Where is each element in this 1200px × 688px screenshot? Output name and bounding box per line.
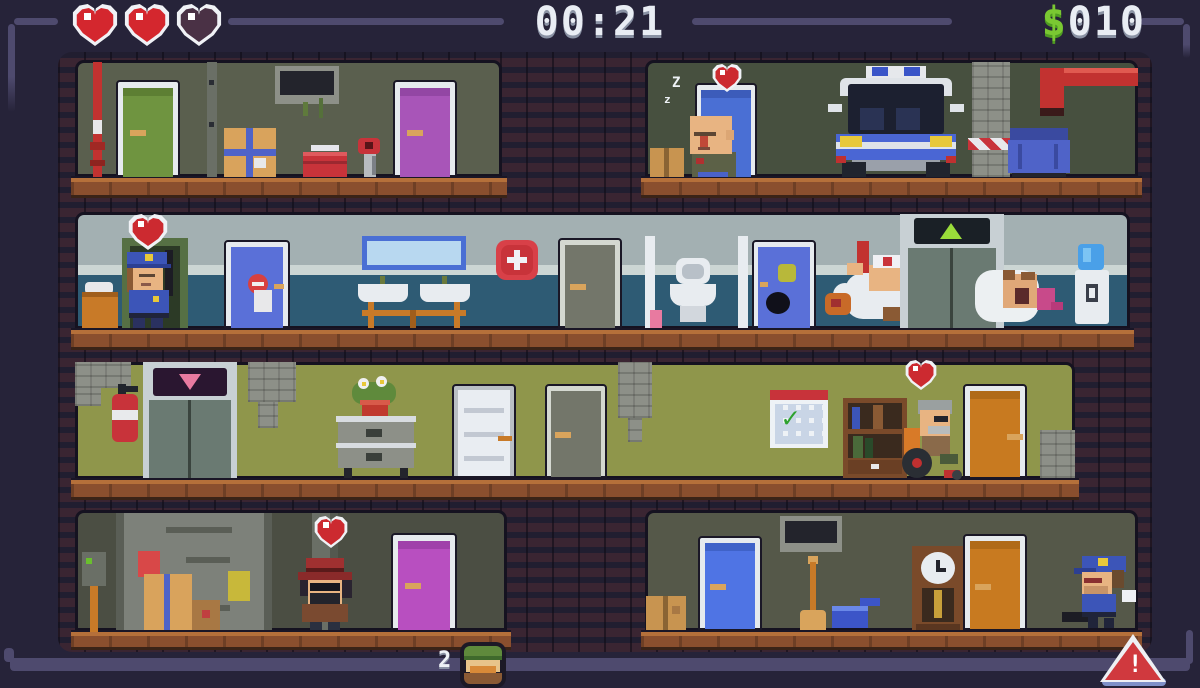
door-gray-floor3[interactable] — [545, 384, 607, 478]
heart-fill — [128, 8, 166, 42]
calendar-check: ✓ — [782, 404, 799, 432]
toilet-bowl — [670, 284, 716, 306]
door-handle — [555, 432, 571, 438]
meter-light — [86, 558, 92, 564]
pipe-joint — [90, 142, 105, 150]
dumpster-lid — [1010, 128, 1068, 140]
red-standpipe — [93, 62, 102, 177]
van-reflector — [946, 156, 956, 163]
dustpan-handle — [860, 598, 880, 606]
garage-graffiti — [166, 527, 232, 533]
door-magenta[interactable] — [391, 533, 457, 630]
patient-mouth — [1015, 288, 1029, 304]
van-headlight — [840, 136, 862, 147]
extinguisher-band — [112, 410, 138, 420]
frame-corner-right — [1183, 24, 1190, 58]
pipe-vertical — [1040, 68, 1064, 108]
guest-ear — [726, 130, 734, 140]
heart-shine — [913, 366, 918, 371]
door-panel-shade — [398, 541, 450, 549]
heart-fill — [180, 8, 218, 42]
drawer-knob — [871, 464, 879, 469]
burglar-sunglasses — [310, 583, 340, 591]
frame-corner-bottom-right — [1186, 630, 1193, 664]
door-orange-floor4[interactable] — [963, 534, 1027, 630]
door-no-entry[interactable] — [224, 240, 290, 328]
clock-feet — [916, 624, 960, 630]
empty-heart-icon — [176, 4, 222, 46]
toolbox-handle — [311, 145, 339, 151]
cabinet-band — [336, 443, 416, 448]
burglar-leg — [328, 622, 340, 630]
heart-shine — [720, 70, 725, 75]
dustpan-lip — [832, 606, 868, 611]
cross-h — [507, 257, 527, 263]
guest-icon-body — [464, 673, 502, 684]
door-handle — [760, 282, 768, 287]
dumpster-feet — [1012, 173, 1066, 177]
sink-leg — [368, 302, 374, 328]
flower-center — [380, 380, 384, 384]
char-patient-scuffle[interactable] — [975, 262, 1067, 328]
heart-shine — [136, 13, 143, 20]
elevator-floor3[interactable] — [143, 362, 237, 478]
game-screen: Zz✓! 00:21 $010 2 — [0, 0, 1200, 688]
currency-symbol: $ — [1042, 0, 1068, 45]
door-green[interactable] — [116, 80, 180, 177]
drawer-cabinet — [336, 416, 416, 478]
floor-2 — [71, 328, 1134, 350]
fire-extinguisher — [110, 384, 140, 446]
clock-hand — [938, 568, 946, 572]
runner-envelope — [1122, 590, 1136, 602]
door-gray-floor2[interactable] — [558, 238, 622, 328]
money-amount: 010 — [1068, 0, 1146, 45]
officer-leg — [151, 318, 163, 328]
frame-line-top — [228, 18, 504, 25]
door-handle — [405, 583, 421, 589]
cardboard-box-large — [224, 128, 276, 177]
door-panel-shade — [400, 88, 450, 96]
frame-line-top — [14, 18, 58, 25]
wall-crack-stone — [618, 362, 652, 418]
heart-shine — [323, 522, 329, 528]
vent-slats — [280, 71, 334, 95]
wall-crack-stone — [258, 402, 278, 428]
garage-note-yellow — [228, 571, 250, 601]
char-burglar-guest[interactable] — [292, 556, 358, 630]
door-panel-shade — [970, 391, 1020, 399]
vent-grille — [780, 516, 842, 552]
door-orange-floor3[interactable] — [963, 384, 1027, 478]
toolbox-latch — [303, 161, 347, 164]
floor-3 — [71, 478, 1079, 500]
alert-button[interactable]: ! — [1100, 634, 1170, 686]
broom — [800, 562, 826, 630]
door-panel — [758, 247, 810, 328]
trashcan-orange — [82, 292, 118, 328]
alert-exclamation: ! — [1128, 652, 1142, 676]
timer: 00:21 — [500, 2, 700, 42]
oldman-glasses — [934, 416, 948, 422]
van-wheel — [842, 162, 866, 177]
stone-pillar — [972, 62, 1010, 177]
wall-crack-stone — [75, 388, 101, 406]
door-purple[interactable] — [393, 80, 457, 177]
first-aid-box — [496, 240, 538, 280]
sleep-z-text: z — [664, 94, 671, 105]
vent-drip — [319, 98, 323, 118]
burglar-coat — [302, 604, 348, 622]
pipe-opening — [1040, 108, 1064, 116]
pole-bolt — [209, 80, 214, 85]
pipe-valve — [90, 160, 105, 166]
door-sign-diamond — [778, 264, 796, 282]
lives-hearts — [72, 4, 222, 46]
box-tape-h — [224, 149, 276, 156]
flower-center — [362, 382, 366, 386]
van-roof-light — [904, 67, 920, 76]
door-handle — [130, 130, 146, 136]
red-pipe-elbow — [1040, 66, 1138, 116]
nurse-arm — [847, 263, 863, 275]
wall-mirror — [362, 236, 466, 270]
guest-counter-icon[interactable] — [460, 642, 506, 688]
wheelchair-front-wheel — [952, 470, 962, 480]
heart-fill — [76, 8, 114, 42]
floor-4-right — [641, 630, 1142, 650]
box-mark — [202, 610, 210, 618]
garage-graffiti — [186, 557, 230, 563]
char-police-runner[interactable] — [1060, 556, 1138, 630]
door-white[interactable] — [452, 384, 516, 478]
officer-mouth — [141, 283, 151, 286]
door-handle — [274, 284, 284, 289]
runner-leg — [1104, 618, 1114, 628]
water-cooler — [1075, 244, 1109, 328]
door-handle — [407, 130, 423, 136]
no-entry-dash — [252, 282, 264, 286]
burglar-hair — [342, 580, 352, 598]
floor-1-right — [641, 176, 1142, 198]
book-green — [853, 436, 863, 458]
calendar-header — [770, 390, 828, 400]
guest-mouth — [698, 147, 710, 150]
patient-hair — [1003, 270, 1015, 280]
oldman-shorts — [940, 454, 958, 464]
wall-crack-stone — [628, 418, 642, 442]
heart-icon — [124, 4, 170, 46]
door-panel-line — [464, 456, 504, 461]
van-wheel — [926, 162, 950, 177]
book-blue — [852, 407, 860, 429]
drawer-handle — [366, 453, 382, 461]
book-dark — [865, 438, 873, 458]
double-sink — [358, 284, 470, 328]
elevator-door-split — [188, 400, 191, 478]
frame-line-top — [1140, 18, 1184, 25]
stall-post — [738, 236, 748, 328]
bookshelf — [843, 398, 907, 478]
toolbox-lid — [303, 152, 347, 156]
officer-leg — [133, 318, 145, 328]
calendar: ✓ — [770, 390, 828, 448]
cooler-bottle — [1078, 244, 1104, 270]
burglar-hair — [300, 580, 308, 596]
clock-pendulum — [934, 590, 942, 618]
floor-1-left — [71, 176, 507, 198]
runner-eyes — [1084, 578, 1102, 583]
cardboard-box-small — [646, 596, 686, 630]
box-label — [254, 158, 266, 168]
dumpster-line — [1018, 144, 1022, 169]
officer-badge — [153, 296, 159, 302]
pole-bolt — [209, 122, 214, 127]
door-handle — [975, 584, 991, 590]
grandfather-clock — [912, 546, 964, 630]
cardboard-box-small — [650, 148, 684, 177]
cabinet-leg — [400, 468, 408, 478]
money-display: $010 — [946, 2, 1146, 42]
cabinet-leg — [344, 468, 352, 478]
guest-pants — [698, 172, 728, 177]
sink-leg — [410, 310, 416, 328]
runner-cap-badge — [1098, 558, 1108, 566]
van-seat — [860, 108, 884, 130]
extinguisher-hose — [124, 386, 138, 392]
dumpster-line — [1054, 144, 1058, 169]
meter-pole — [90, 586, 98, 632]
toilet — [662, 258, 728, 328]
saw-teeth — [372, 156, 376, 175]
pink-bin — [650, 310, 662, 328]
toolbox-red — [303, 152, 347, 177]
pipe-band — [93, 120, 102, 134]
trashcan-rim — [82, 292, 118, 297]
runner-hair — [1112, 570, 1124, 588]
door-panel-shade — [705, 543, 755, 551]
box-tape-v — [663, 596, 668, 630]
box-tape-v — [164, 574, 170, 630]
patient-hair — [1021, 272, 1035, 280]
van-roof-light — [872, 67, 888, 76]
sink-tap — [380, 276, 385, 284]
door-blue-floor4[interactable] — [698, 536, 762, 630]
vent-grille — [275, 66, 339, 104]
dumpster-blue — [1008, 128, 1070, 177]
frame-line-bottom — [10, 658, 1190, 671]
van-reflector — [836, 156, 846, 163]
police-van — [830, 66, 962, 177]
guest-count: 2 — [438, 650, 451, 672]
saw-handle-hole — [365, 142, 373, 149]
burglar-hat-brim — [298, 572, 352, 580]
meter-box — [82, 552, 106, 586]
door-damaged[interactable] — [752, 240, 816, 328]
wheel-hub — [912, 458, 922, 468]
door-handle — [498, 436, 512, 441]
vent-slats — [785, 521, 837, 543]
toilet-base — [680, 306, 706, 322]
heart-shine — [188, 13, 195, 20]
door-panel-line — [464, 408, 504, 413]
bottle-shine — [1083, 248, 1091, 262]
van-mirror — [950, 104, 964, 112]
heart-shine — [84, 13, 91, 20]
toilet-seat-hole — [682, 264, 704, 279]
burglar-mustache — [310, 593, 340, 604]
guest-chest-patch — [696, 158, 704, 164]
wall-crack-stone — [1040, 430, 1075, 478]
char-sleeping-bald-guest[interactable] — [688, 116, 740, 177]
frame-corner-bottom-left — [4, 648, 14, 662]
door-hole — [766, 292, 790, 314]
broom-stick — [810, 562, 816, 612]
burglar-leg — [310, 622, 322, 630]
oldman-mustache — [928, 426, 950, 434]
van-mirror — [828, 104, 842, 112]
nurse-head — [869, 265, 903, 291]
van-seat — [896, 108, 920, 130]
vent-drip — [303, 102, 308, 116]
pot-rim — [360, 400, 390, 405]
door-handle — [1007, 434, 1023, 440]
sink-leg — [454, 302, 460, 328]
officer-eyes — [139, 274, 155, 277]
door-paper — [254, 290, 272, 312]
sleep-z-text: Z — [672, 76, 680, 90]
door-panel-shade — [970, 541, 1020, 549]
officer-cap-brim — [127, 264, 171, 268]
char-old-man-wheelchair[interactable] — [900, 400, 962, 478]
van-headlight — [930, 136, 952, 147]
dustpan-blue — [832, 598, 880, 630]
sink-basin — [420, 284, 470, 302]
wall-crack-stone — [248, 362, 296, 402]
door-panel-shade — [123, 88, 173, 96]
floor-4-left — [71, 630, 511, 650]
elevator-door-split — [950, 248, 953, 328]
heart-icon — [72, 4, 118, 46]
box-label — [672, 606, 680, 614]
door-handle — [570, 284, 586, 290]
officer-cap-badge — [145, 254, 153, 261]
frame-corner-left — [8, 24, 15, 112]
garage-rail — [264, 513, 272, 630]
frame-line-top — [692, 18, 952, 25]
heart-shine — [138, 221, 144, 227]
book-brown — [873, 405, 883, 429]
door-handle — [710, 584, 726, 590]
box-tape-v — [664, 148, 669, 177]
char-police-officer[interactable] — [125, 250, 179, 328]
drawer-handle — [366, 429, 382, 437]
wall-pole — [207, 62, 217, 177]
runner-stubble — [1084, 586, 1108, 594]
pink-attacker-arm — [1051, 302, 1063, 310]
sink-tap — [442, 276, 447, 284]
flower-pot — [348, 376, 400, 420]
broom-bristles — [800, 610, 826, 630]
garage-rail — [116, 513, 124, 630]
creature-detail — [831, 299, 841, 307]
boxes-stack — [142, 572, 220, 630]
cooler-cup — [1089, 288, 1095, 298]
mirror-glass — [367, 241, 461, 265]
sink-basin — [358, 284, 408, 302]
heart-fill — [132, 218, 164, 246]
nurse-cap-cross — [883, 257, 892, 266]
runner-leg — [1088, 616, 1098, 628]
hand-saw — [358, 138, 380, 177]
